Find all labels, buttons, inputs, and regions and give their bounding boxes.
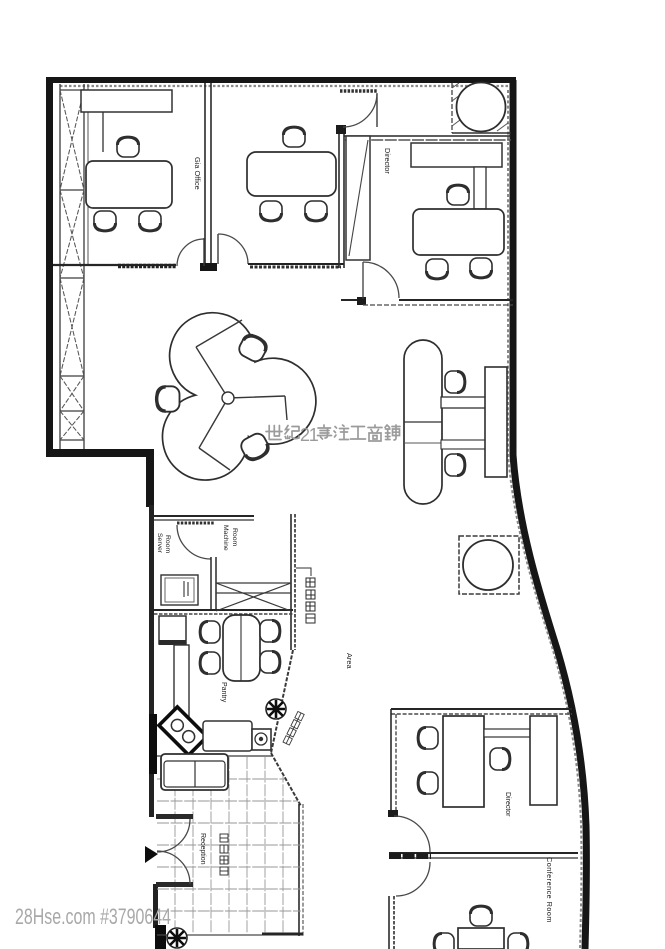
svg-text:28Hse.com #3790644: 28Hse.com #3790644	[15, 904, 171, 929]
svg-text:Pantry: Pantry	[220, 682, 227, 703]
svg-text:Machine: Machine	[222, 525, 229, 551]
svg-text:Reception: Reception	[199, 833, 206, 865]
svg-text:21: 21	[300, 425, 319, 445]
svg-text:Room: Room	[231, 528, 238, 546]
svg-text:Server: Server	[156, 533, 163, 554]
svg-text:Room: Room	[164, 535, 171, 553]
svg-text:Director: Director	[383, 148, 392, 174]
svg-text:Area: Area	[345, 653, 354, 670]
svg-text:Director: Director	[504, 792, 511, 817]
svg-text:Gia Office: Gia Office	[193, 157, 202, 190]
svg-text:Conference Room: Conference Room	[545, 857, 554, 923]
